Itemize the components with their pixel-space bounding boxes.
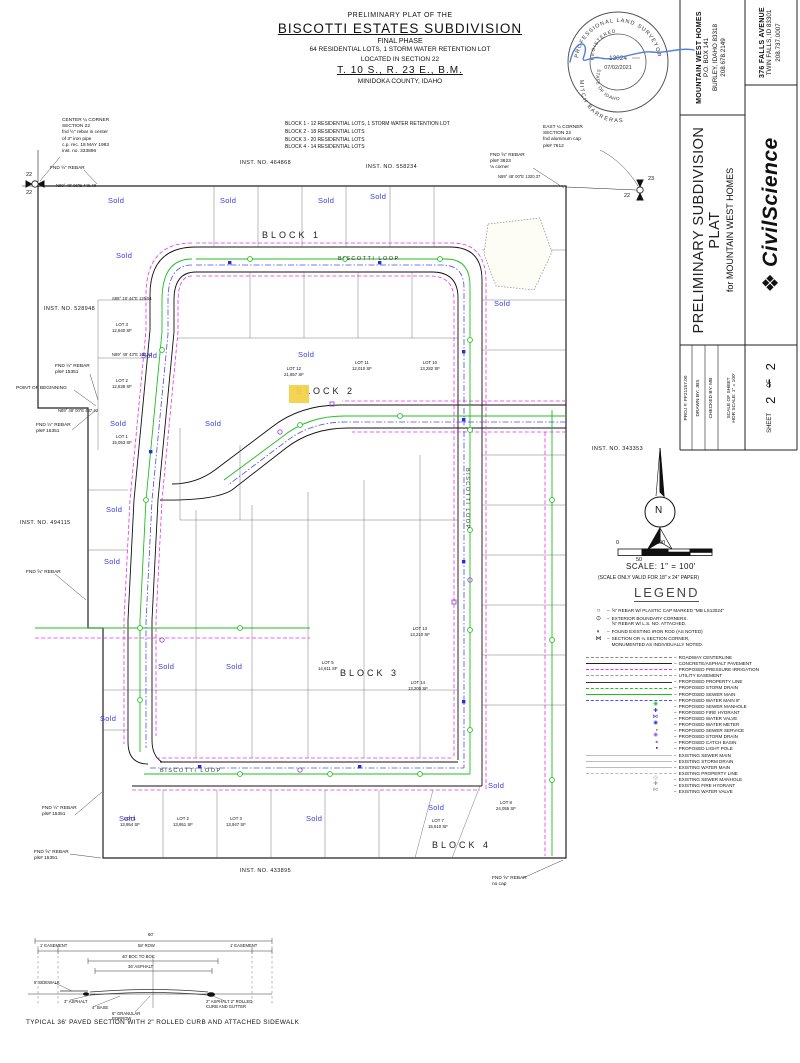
water-fixtures: [149, 261, 465, 768]
legend-line-label: EXISTING SEWER MANHOLE: [679, 777, 743, 783]
legend-dash: –: [674, 661, 677, 666]
sheet-title-for: for MOUNTAIN WEST HOMES: [725, 168, 735, 292]
legend-line-label: ROADWAY CENTERLINE: [679, 655, 733, 661]
utility-irrigation-lines: [35, 243, 566, 856]
storm-fixtures: [160, 402, 472, 772]
legend-line-label: EXISTING PROPERTY LINE: [679, 771, 738, 777]
hor-scale: HOR SCALE: 1" = 100': [732, 373, 737, 422]
sheet-number: 2: [763, 397, 778, 404]
legend-line-label: EXISTING FIRE HYDRANT: [679, 783, 736, 789]
legend-dash: –: [674, 746, 677, 751]
map-label: BLOCK 1: [262, 230, 321, 241]
map-label: TYPICAL 36' PAVED SECTION WITH 2" ROLLED…: [26, 1019, 299, 1027]
client-phone: 208.678.2149: [720, 38, 729, 77]
map-label: 1' EASEMENT: [40, 943, 67, 948]
legend-line-swatch: [586, 700, 672, 701]
map-label: Sold: [220, 196, 236, 205]
map-label: BLOCK 4: [432, 840, 491, 851]
highlight-marker: [289, 385, 309, 403]
retention-pond: [484, 218, 552, 290]
map-label: N89° 49' 43"E 124.82: [112, 352, 152, 357]
map-label: LOT 5 14,611 SF: [318, 660, 338, 672]
sheet-total: 2: [763, 363, 778, 370]
map-label: LOT 7 15,510 SF: [428, 818, 448, 830]
map-label: N89° 48' 00"E 437.42: [58, 408, 98, 413]
map-label: 1' EASEMENT: [230, 943, 257, 948]
map-label: EAST ¼ CORNER SECTION 22 fnd aluminum ca…: [543, 125, 583, 150]
legend-line-label: PROPOSED STORM DRAIN: [679, 685, 738, 691]
legend-marker-icon: ◐: [592, 629, 605, 635]
map-label: N: [655, 505, 662, 518]
civilscience-logo-icon: ❖: [758, 273, 784, 293]
legend-marker-row: ◐ – FOUND EXISTING IRON ROD (AS NOTED): [592, 629, 792, 635]
legend-line-swatch: [586, 675, 672, 676]
legend-line-label: PROPOSED SEWER MAIN: [679, 692, 736, 698]
legend-line-label: PROPOSED LIGHT POLE: [679, 746, 733, 752]
map-label: FND ⅝" REBAR: [26, 570, 61, 576]
map-label: Sold: [318, 196, 334, 205]
map-label: INST. NO. 343353: [592, 446, 643, 453]
phase-line: FINAL PHASE: [240, 38, 560, 45]
legend-line-label: PROPOSED STORM DRAIN: [679, 734, 738, 740]
legend-line-label: PROPOSED WATER METER: [679, 722, 740, 728]
map-label: INST. NO. 464868: [240, 160, 291, 167]
legend-dash: –: [674, 685, 677, 690]
legend-line-swatch: [586, 682, 672, 683]
legend-line-label: PROPOSED PRESSURE IRRIGATION: [679, 667, 759, 673]
legend-marker-label: SECTION OR ¼ SECTION CORNER, MONUMENTED …: [612, 636, 703, 648]
map-label: Sold: [116, 251, 132, 260]
map-label: 4" BASE: [92, 1005, 108, 1010]
svg-text:STATE OF IDAHO: STATE OF IDAHO: [595, 68, 620, 101]
map-label: FND ⅝" REBAR no cap: [492, 876, 527, 888]
map-label: 58' ROW: [138, 943, 155, 948]
county-line: MINIDOKA COUNTY, IDAHO: [240, 78, 560, 85]
map-label: N89° 48' 06"E 446.48: [56, 183, 96, 188]
map-label: LOT 13 13,210 SF: [410, 626, 430, 638]
legend-line-label: PROPOSED WATER MAIN 8": [679, 698, 741, 704]
map-label: BLOCK 3: [340, 668, 399, 679]
legend-lines: – ROADWAY CENTERLINE – CONCRETE/ASPHALT …: [586, 655, 796, 795]
legend-dash: –: [674, 734, 677, 739]
legend-marker-label: EXTERIOR BOUNDARY CORNERS. ⅝" REBAR W/ L…: [612, 616, 688, 628]
legend-line-swatch: [586, 773, 672, 774]
firm-phone: 208.737.0007: [775, 23, 784, 62]
title-block: PRELIMINARY PLAT OF THE BISCOTTI ESTATES…: [240, 12, 560, 85]
client-name: MOUNTAIN WEST HOMES: [696, 11, 703, 104]
map-label: Sold: [158, 662, 174, 671]
legend-dash: –: [674, 783, 677, 788]
map-label: 0: [616, 540, 619, 547]
map-label: LOT 1 13,954 SF: [120, 816, 140, 828]
map-label: Sold: [108, 196, 124, 205]
legend-line-label: PROPOSED CATCH BASIN: [679, 740, 737, 746]
legend-line-label: PROPOSED SEWER SERVICE: [679, 728, 745, 734]
map-label: INST. NO. 494115: [20, 520, 71, 527]
subdivision-name: BISCOTTI ESTATES SUBDIVISION: [240, 21, 560, 36]
map-label: POINT OF BEGINNING: [16, 386, 67, 392]
plat-sheet: PROFESSIONAL LAND SURVEYOR MITCH BARRERA…: [0, 0, 800, 1063]
map-label: Sold: [428, 803, 444, 812]
legend-dash: –: [674, 771, 677, 776]
legend-marker-row: ⋈ – SECTION OR ¼ SECTION CORNER, MONUMEN…: [592, 636, 792, 648]
block-summary: BLOCK 1 - 12 RESIDENTIAL LOTS, 1 STORM W…: [285, 121, 450, 152]
sheet-title: PRELIMINARY SUBDIVISION PLAT: [691, 115, 723, 345]
map-label: Sold: [110, 419, 126, 428]
map-label: Sold: [100, 714, 116, 723]
firm-addr1: 376 FALLS AVENUE: [759, 7, 766, 78]
map-label: FND ½" REBAR: [50, 166, 85, 172]
sewer-manholes: [138, 257, 555, 783]
map-label: LOT 12 21,857 SF: [284, 366, 304, 378]
legend-dash: –: [674, 679, 677, 684]
proj-number: PROJ #: FF21157.00: [681, 346, 692, 450]
legend-markers: ○ – ⅝" REBAR W/ PLASTIC CAP MARKED "MB L…: [592, 608, 792, 650]
map-label: LOT 8 24,055 SF: [496, 800, 516, 812]
map-label: Sold: [306, 814, 322, 823]
lot-lines: [88, 186, 566, 858]
map-label: LOT 10 13,282 SF: [420, 360, 440, 372]
legend-title: LEGEND: [634, 585, 699, 602]
township-line: T. 10 S., R. 23 E., B.M.: [240, 65, 560, 76]
scale-bar: [618, 549, 712, 556]
map-label: Sold: [106, 505, 122, 514]
map-label: N89° 48' 00"E 1320.37: [498, 174, 540, 179]
map-label: SCALE: 1" = 100': [626, 562, 696, 572]
legend-dash: –: [674, 710, 677, 715]
legend-marker-row: ⊙ – EXTERIOR BOUNDARY CORNERS. ⅝" REBAR …: [592, 616, 792, 628]
legend-dash: –: [607, 608, 610, 613]
legend-line-swatch: [586, 767, 672, 768]
legend-dash: –: [674, 655, 677, 660]
map-label: 2" ASPHALT 2" ROLLED CURB AND GUTTER: [206, 999, 252, 1010]
firm-address-block: 376 FALLS AVENUE TWIN FALLS, ID 83301 20…: [745, 0, 797, 85]
sheet-title-block: PRELIMINARY SUBDIVISION PLAT for MOUNTAI…: [681, 115, 745, 345]
map-label: Sold: [298, 350, 314, 359]
map-label: INST. NO. 558234: [366, 164, 417, 171]
client-addr2: BURLEY, IDAHO 83318: [712, 24, 721, 91]
map-label: Sold: [104, 557, 120, 566]
drawn-by: DRAWN BY: JBS: [693, 346, 704, 450]
legend-line-row: – EXISTING WATER VALVE: [586, 789, 796, 795]
surveyor-seal: PROFESSIONAL LAND SURVEYOR MITCH BARRERA…: [568, 12, 668, 124]
legend-line-label: EXISTING SEWER MAIN: [679, 753, 731, 759]
legend-line-label: CONCRETE/ASPHALT PAVEMENT: [679, 661, 752, 667]
legend-marker-icon: ⊙: [592, 616, 605, 622]
civilscience-logo: ❖ CivilScience: [745, 85, 797, 345]
map-label: 5' SIDEWALK: [34, 980, 60, 985]
map-label: LOT 3 12,640 SF: [112, 322, 132, 334]
legend-dash: –: [674, 777, 677, 782]
legend-dash: –: [607, 616, 610, 621]
map-label: 22: [624, 193, 630, 200]
legend-dash: –: [674, 704, 677, 709]
map-label: BISCOTTI LOOP: [463, 468, 470, 530]
map-label: FND ⅝" REBAR pls# 3623 ⅛ corner: [490, 153, 525, 172]
map-label: INST. NO. 433895: [240, 868, 291, 875]
legend-dash: –: [674, 759, 677, 764]
civilscience-logo-text: CivilScience: [759, 137, 783, 267]
legend-marker-icon: ○: [592, 608, 605, 614]
legend-line-label: EXISTING WATER VALVE: [679, 789, 733, 795]
scale-of-sheet: SCALE OF SHEET HOR SCALE: 1" = 100': [719, 346, 744, 450]
map-label: Sold: [370, 192, 386, 201]
legend-dash: –: [607, 636, 610, 641]
legend-line-label: UTILITY EASEMENT: [679, 673, 723, 679]
legend-dash: –: [674, 765, 677, 770]
legend-marker-icon: ⋈: [592, 636, 605, 642]
signature-stroke: [570, 44, 694, 62]
map-label: LOT 14 13,200 SF: [408, 680, 428, 692]
legend-dash: –: [674, 692, 677, 697]
sheet-of-word: OF: [767, 379, 773, 387]
map-label: 22: [26, 172, 32, 179]
map-label: 40' BOC TO BOC: [122, 954, 155, 959]
map-label: 60': [148, 932, 153, 937]
legend-dash: –: [607, 629, 610, 634]
firm-addr2: TWIN FALLS, ID 83301: [766, 10, 775, 76]
svg-text:07/02/2021: 07/02/2021: [604, 65, 632, 71]
legend-line-swatch: [586, 755, 672, 756]
map-label: INST. NO. 528948: [44, 306, 95, 313]
map-label: CENTER ¼ CORNER SECTION 22 fnd ½" rebar …: [62, 118, 109, 155]
legend-dash: –: [674, 728, 677, 733]
legend-dash: –: [674, 789, 677, 794]
legend-marker-label: FOUND EXISTING IRON ROD (AS NOTED): [612, 629, 703, 635]
client-addr1: P.O. BOX 141: [703, 38, 712, 77]
map-label: (SCALE ONLY VALID FOR 18" x 24" PAPER): [598, 575, 699, 581]
map-label: FND ⅝" REBAR pls# 15351: [34, 850, 69, 862]
map-label: LOT 2 13,951 SF: [173, 816, 193, 828]
legend-line-label: EXISTING STORM DRAIN: [679, 759, 734, 765]
legend-dash: –: [674, 667, 677, 672]
checked-by: CHECKED BY: MB: [706, 346, 717, 450]
map-label: BISCOTTI LOOP: [338, 256, 400, 263]
map-label: Sold: [226, 662, 242, 671]
map-label: FND ½" REBAR pls# 15351: [42, 806, 77, 818]
utility-water-lines: [146, 265, 566, 768]
map-label: 22: [26, 190, 32, 197]
legend-line-swatch: [586, 761, 672, 762]
legend-line-swatch: [586, 657, 672, 658]
located-line: LOCATED IN SECTION 22: [240, 56, 560, 63]
map-label: 23: [648, 176, 654, 183]
north-arrow: [645, 448, 675, 549]
map-label: LOT 1 15,053 SF: [112, 434, 132, 446]
legend-dash: –: [674, 722, 677, 727]
legend-marker-row: ○ – ⅝" REBAR W/ PLASTIC CAP MARKED "MB L…: [592, 608, 792, 614]
legend-line-label: PROPOSED SEWER MANHOLE: [679, 704, 747, 710]
map-label: Sold: [494, 299, 510, 308]
title-prefix: PRELIMINARY PLAT OF THE: [240, 12, 560, 19]
sheet-number-block: SHEET 2 OF 2: [745, 346, 795, 450]
legend-line-label: PROPOSED PROPERTY LINE: [679, 679, 743, 685]
map-label: LOT 2 12,638 SF: [112, 378, 132, 390]
legend-line-swatch: [586, 669, 672, 670]
legend-dash: –: [674, 740, 677, 745]
map-label: S88° 18' 44"E 125.51: [112, 296, 152, 301]
map-label: LOT 3 13,947 SF: [226, 816, 246, 828]
map-label: 36' ASPHALT: [128, 964, 153, 969]
legend-line-label: EXISTING WATER MAIN: [679, 765, 731, 771]
client-address-block: MOUNTAIN WEST HOMES P.O. BOX 141 BURLEY,…: [680, 0, 745, 115]
legend-line-swatch: [586, 688, 672, 689]
lots-line: 64 RESIDENTIAL LOTS, 1 STORM WATER RETEN…: [240, 46, 560, 53]
map-label: Sold: [488, 781, 504, 790]
legend-line-label: PROPOSED WATER VALVE: [679, 716, 738, 722]
legend-dash: –: [674, 698, 677, 703]
map-label: 3" ASPHALT: [64, 999, 88, 1004]
legend-line-swatch: [586, 694, 672, 695]
map-label: Sold: [205, 419, 221, 428]
legend-line-label: PROPOSED FIRE HYDRANT: [679, 710, 740, 716]
legend-dash: –: [674, 753, 677, 758]
plat-linework: PROFESSIONAL LAND SURVEYOR MITCH BARRERA…: [0, 0, 800, 1063]
map-label: FND ½" REBAR pls# 15351: [36, 423, 71, 435]
map-label: LOT 11 12,010 SF: [352, 360, 372, 372]
legend-dash: –: [674, 716, 677, 721]
legend-marker-label: ⅝" REBAR W/ PLASTIC CAP MARKED "MB LS130…: [612, 608, 725, 614]
map-label: FND ½" REBAR pls# 15351: [55, 364, 90, 376]
sheet-word: SHEET: [767, 413, 773, 433]
legend-dash: –: [674, 673, 677, 678]
map-label: BISCOTTI LOOP: [160, 768, 222, 775]
legend-line-swatch: [586, 663, 672, 664]
map-label: 100: [656, 540, 665, 547]
